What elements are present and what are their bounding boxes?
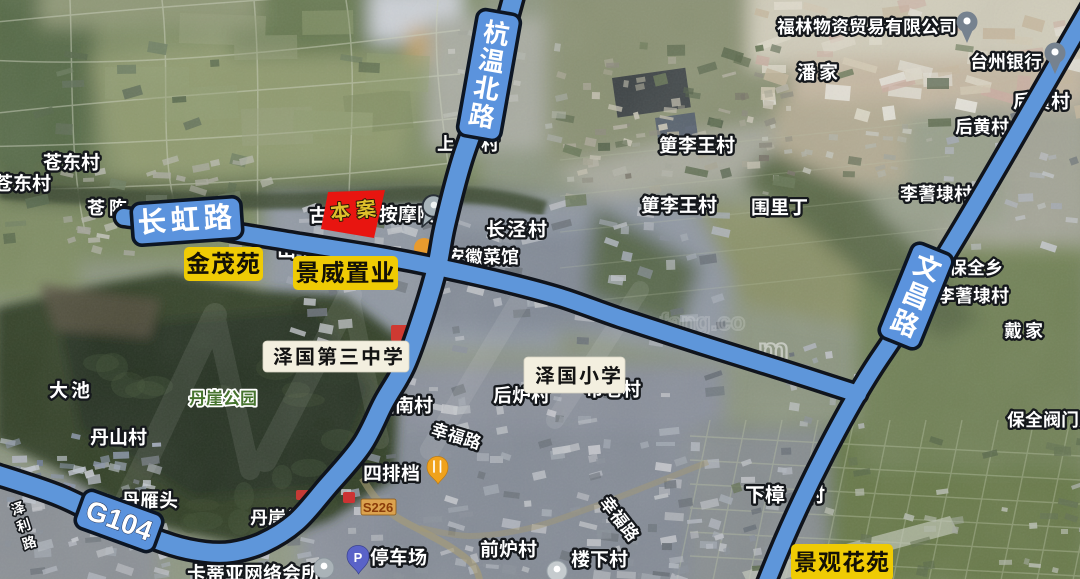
svg-text:S226: S226 <box>363 500 393 515</box>
svg-text:P: P <box>354 550 363 565</box>
